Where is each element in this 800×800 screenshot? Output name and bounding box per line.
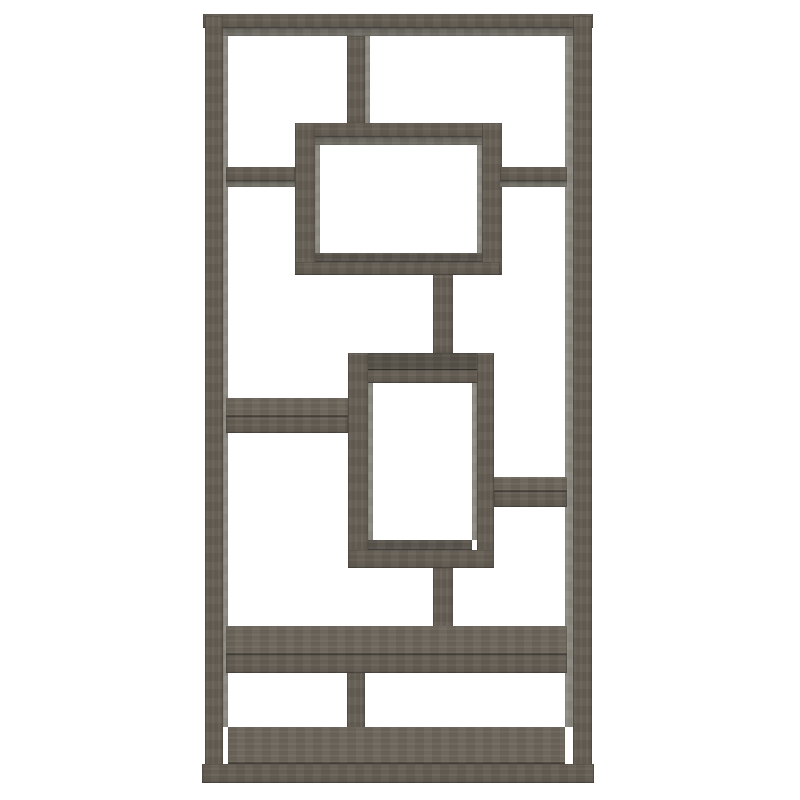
upper-box-left-inner-face	[315, 145, 320, 253]
middle-box-right-wall	[477, 353, 494, 568]
top-divider-front	[347, 36, 365, 125]
middle-box-left-inner-face	[368, 383, 373, 540]
mid-right-shelf-top	[494, 477, 567, 492]
upper-box-top-front	[295, 123, 500, 137]
middle-box-bottom-front	[348, 550, 494, 568]
right-post-inner-face	[565, 36, 573, 727]
right-post-front	[573, 16, 592, 783]
mid-right-shelf-front	[494, 492, 567, 507]
middle-box-top-front	[348, 370, 494, 383]
left-post-front	[205, 16, 223, 783]
left-post-inner-face	[223, 36, 228, 727]
mid-left-shelf-top	[226, 398, 348, 417]
upper-stem-front	[433, 275, 453, 355]
upper-box-bottom-front	[295, 262, 500, 275]
upper-right-shelf-underside	[500, 181, 567, 187]
upper-left-shelf-front	[226, 167, 295, 181]
top-divider-inner-face	[365, 36, 370, 123]
upper-box-left-wall	[295, 123, 315, 275]
top-rail-front	[203, 14, 593, 28]
mid-left-shelf-front	[226, 417, 348, 433]
geometric-bookcase	[0, 0, 800, 800]
upper-box-right-wall	[482, 123, 502, 275]
upper-box-bottom-shadow	[315, 253, 482, 262]
lower-shelf-top	[226, 626, 567, 655]
middle-box-bottom-shadow	[368, 540, 472, 550]
upper-left-shelf-underside	[226, 181, 295, 187]
floor-top-surface	[228, 727, 565, 764]
plinth-front	[202, 764, 594, 783]
top-rail-underside	[209, 28, 587, 36]
middle-box-top-surface	[348, 353, 494, 370]
middle-box-left-wall	[348, 353, 368, 568]
upper-box-top-underside	[315, 137, 482, 145]
lower-shelf-front	[226, 655, 567, 673]
upper-right-shelf-front	[500, 167, 567, 181]
product-photo	[0, 0, 800, 800]
